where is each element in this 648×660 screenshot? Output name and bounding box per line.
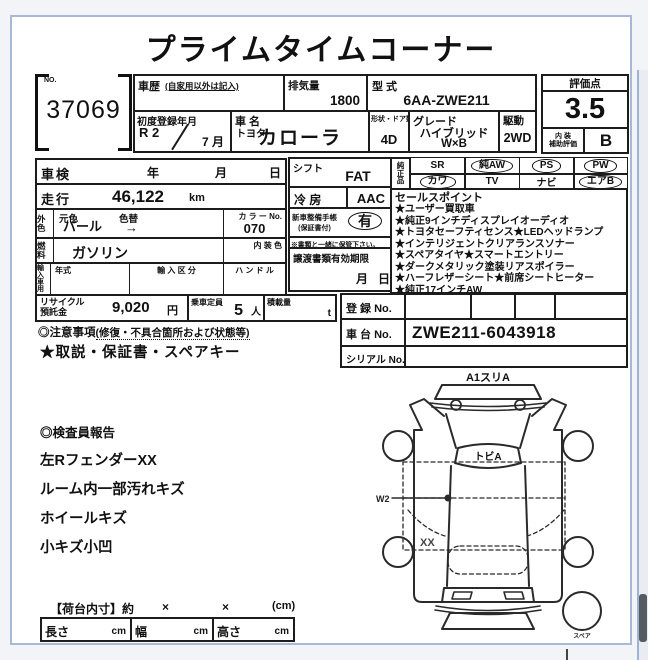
mileage-label: 走行 [41,189,71,208]
ac-box: 冷 房 AAC [288,186,398,209]
recycle-label: リサイクル預託金 [40,297,85,318]
shaken-row: 車検 年 月 日 [35,158,287,185]
cargo-title-row: 【荷台内寸】約 × × (cm) [40,600,310,616]
mileage-row: 走行 46,122 km [35,183,287,210]
diagram-front-label: A1スリA [466,371,510,384]
lot-number-box: NO. 37069 [35,74,132,151]
equip-sr: SR [410,157,466,175]
service-booklet-box: 新車整備手帳(保証書付) 有 [288,207,398,238]
score-value: 3.5 [543,91,627,125]
page-title: プライムタイムコーナー [12,25,630,69]
load-unit: t [328,308,331,319]
caution-title: ◎注意事項 [38,327,96,339]
inspector-line: 左RフェンダーXX [40,449,320,470]
transfer-month: 月 [356,270,368,287]
body-doors-label: 形状・ドア数 [371,114,413,124]
sales-line: ★スペアタイヤ★スマートエントリー [395,250,623,262]
grade-line2: W×B [410,138,498,150]
sales-line: ★ハーフレザーシート★前席シートヒーター [395,273,623,285]
next-sheet-tick [566,649,568,660]
mileage-unit: km [189,192,205,204]
fuel-row: 燃料 ガソリン 内 装 色 [35,237,287,264]
caution-line: ★取説・保証書・スペアキー [40,341,240,362]
handle-label: ハ ン ド ル [224,265,285,276]
interior-score-row: 内 装 補助評価 B [543,127,627,152]
diagram-spare-label: スペア [573,633,591,640]
body-doors-value: 4D [370,132,408,147]
fuel-value: ガソリン [72,243,128,263]
color-no-cell: カ ラ ー No. 070 [223,210,285,237]
shift-box: シフト FAT [288,157,398,188]
interior-label-2: 補助評価 [549,141,577,148]
mileage-value: 46,122 [112,187,164,207]
score-label: 評価点 [543,76,627,92]
base-color-value: パール [63,216,102,235]
recycle-value: 9,020 [112,299,150,316]
registration-no-label: 登 録 No. [346,300,392,316]
interior-score-value: B [585,129,627,152]
inspector-report: ◎検査員報告 左RフェンダーXX ルーム内一部汚れキズ ホイールキズ 小キズ小凹 [40,422,320,557]
cargo-length-cell: 長さ cm [40,617,132,642]
diagram-w2-label: W2 [376,494,390,504]
scrollbar-thumb[interactable] [639,594,647,642]
adjacent-page-strip [637,70,648,660]
load-cell: 積載量 t [263,296,335,320]
ext-color-vlabel: 外色 [37,210,54,237]
cargo-unit: (cm) [272,600,295,612]
inspector-line: 小キズ小凹 [40,536,320,557]
import-year-label: 年式 [55,265,71,276]
interior-color-label: 内 装 色 [254,240,282,251]
equip-ps: PS [519,157,575,175]
registration-no-row: 登 録 No. [340,293,628,320]
first-reg-year: R 2 [139,125,159,140]
caution-title-row: ◎注意事項(修復・不具合箇所および状態等) [38,324,250,340]
displacement-value: 1800 [330,93,360,108]
cargo-width-label: 幅 [135,623,147,640]
booklet-label: 新車整備手帳(保証書付) [292,213,337,233]
equip-pw: PW [573,157,628,175]
shaken-label: 車検 [41,164,71,183]
car-damage-diagram: A1スリA トビA W2 XX スペア [368,370,630,643]
diagram-xx-label: XX [420,537,435,549]
sales-points-box: セールスポイント ★ユーザー買取車 ★純正9インチディスプレイオーディオ ★トヨ… [390,188,628,294]
repaint-value: → [125,220,138,235]
drive-label: 駆動 [503,113,524,128]
booklet-value: 有 [348,212,382,230]
model-code-cell: 型 式 6AA-ZWE211 [366,74,537,112]
chassis-no-row: 車 台 No. ZWE211-6043918 [340,318,628,347]
recycle-unit: 円 [167,302,178,318]
shift-label: シフト [293,160,323,175]
history-cell: 車歴 (自家用以外は記入) [133,74,285,112]
cargo-length-label: 長さ [45,623,69,640]
drive-cell: 駆動 2WD [498,110,537,153]
model-code-value: 6AA-ZWE211 [368,92,525,108]
capacity-unit: 人 [251,303,261,318]
inspector-line: ルーム内一部汚れキズ [40,478,320,499]
car-name-value: カローラ [232,123,368,150]
body-doors-cell: 形状・ドア数 4D [368,110,410,153]
shaken-day: 日 [269,164,281,181]
exterior-color-row: 外色 元色 パール 色替 → カ ラ ー No. 070 [35,208,287,239]
cargo-height-cell: 高さ cm [212,617,295,642]
car-name-cell: 車 名 トヨタ カローラ [230,110,370,153]
transfer-label: 譲渡書類有効期限 [293,251,369,265]
handle-cell: ハ ン ド ル [223,264,285,294]
sales-line: ★ユーザー買取車 [395,204,623,216]
equipment-vlabel: 純正品 [390,157,411,190]
recycle-row: リサイクル預託金 9,020 円 乗車定員 5 人 積載量 t [35,294,337,322]
cargo-times-1: × [162,600,169,614]
sales-points-title: セールスポイント [395,192,623,204]
cargo-length-unit: cm [112,626,126,637]
first-reg-month: 7 月 [202,133,224,150]
equipment-grid: 純正品 SR 純AW PS PW カワ TV ナビ エアB [390,157,628,190]
cargo-times-2: × [222,600,229,614]
capacity-cell: 乗車定員 5 人 [187,296,265,320]
inspector-title: ◎検査員報告 [40,422,320,441]
capacity-label: 乗車定員 [191,297,223,308]
color-no-value: 070 [224,221,285,236]
caution-title-sub: (修復・不具合箇所および状態等) [96,327,250,340]
displacement-label: 排気量 [288,78,320,93]
ac-label: 冷 房 [294,191,321,208]
cargo-title: 【荷台内寸】約 [50,600,134,617]
lot-no-label: NO. [44,77,56,84]
shaken-year: 年 [147,164,159,181]
diagram-hood-label: トビA [474,450,501,463]
capacity-value: 5 [234,302,243,320]
serial-no-row: シリアル No. [340,345,628,368]
transfer-day: 日 [378,270,390,287]
first-registration-cell: 初度登録年月 R 2 7 月 [133,110,232,153]
cargo-width-cell: 幅 cm [130,617,214,642]
history-sub-label: (自家用以外は記入) [165,80,239,92]
shaken-month: 月 [215,164,227,181]
cargo-height-unit: cm [275,626,289,637]
auction-sheet-page: プライムタイムコーナー NO. 37069 車歴 (自家用以外は記入) 排気量 … [0,0,648,660]
cargo-width-unit: cm [194,626,208,637]
lot-number: 37069 [35,96,132,125]
auction-sheet: プライムタイムコーナー NO. 37069 車歴 (自家用以外は記入) 排気量 … [10,15,632,645]
chassis-no-label: 車 台 No. [346,326,392,342]
serial-no-label: シリアル No. [346,351,405,366]
sales-line: ★ダークメタリック塗装リアスポイラー [395,262,623,274]
import-vlabel: 輸入車用 [37,264,51,294]
sales-line: ★インテリジェントクリアランスソナー [395,239,623,251]
inspector-line: ホイールキズ [40,507,320,528]
displacement-cell: 排気量 1800 [283,74,368,112]
sales-line: ★トヨタセーフティセンス★LEDヘッドランプ [395,227,623,239]
load-label: 積載量 [267,297,291,308]
import-row: 輸入車用 年式 輸 入 区 分 ハ ン ド ル [35,262,287,296]
equip-alloy-wheels: 純AW [464,157,520,175]
interior-label-1: 内 装 [555,133,571,140]
sales-line: ★純正9インチディスプレイオーディオ [395,216,623,228]
shift-value: FAT [320,168,396,184]
cargo-height-label: 高さ [217,623,241,640]
drive-value: 2WD [500,131,535,145]
chassis-no-value: ZWE211-6043918 [412,323,556,343]
import-class-label: 輸 入 区 分 [130,265,223,276]
import-class-cell: 輸 入 区 分 [129,264,223,294]
grade-cell: グレード ハイブリッド W×B [408,110,500,153]
score-box: 評価点 3.5 内 装 補助評価 B [541,74,629,154]
interior-color-cell: 内 装 色 [223,239,285,262]
transfer-docs-box: 譲渡書類有効期限 月 日 [288,247,398,292]
ac-value: AAC [346,191,396,206]
history-label: 車歴 [138,78,160,94]
fuel-vlabel: 燃料 [37,239,54,262]
